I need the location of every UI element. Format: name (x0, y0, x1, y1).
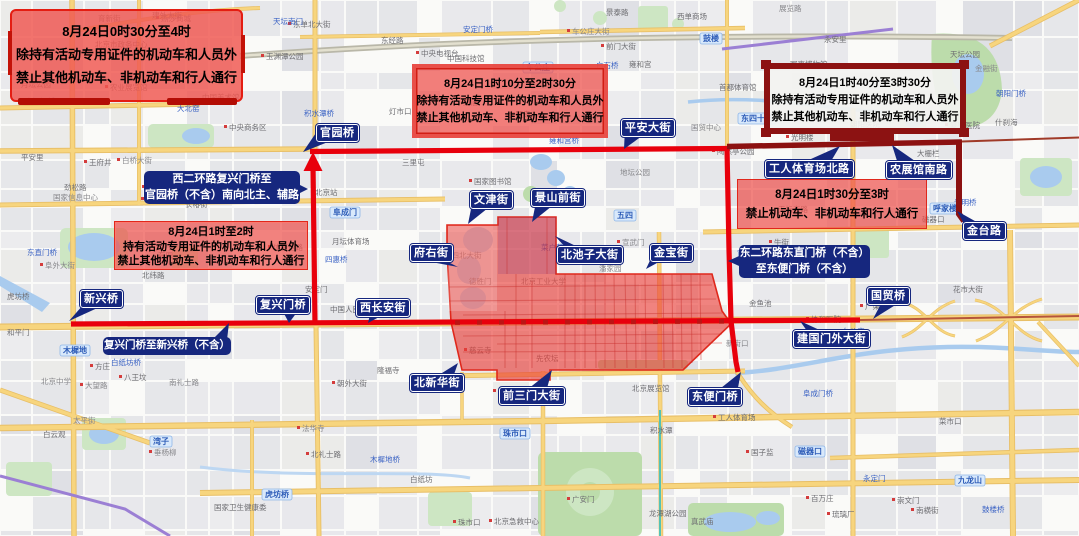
svg-text:广安门: 广安门 (572, 494, 595, 504)
svg-text:中国科技馆: 中国科技馆 (447, 53, 485, 63)
svg-text:八王坟: 八王坟 (124, 372, 147, 382)
svg-text:新街口: 新街口 (726, 338, 749, 348)
svg-text:垂杨柳: 垂杨柳 (154, 447, 177, 457)
svg-text:南礼士路: 南礼士路 (169, 377, 199, 387)
svg-text:白纸坊桥: 白纸坊桥 (111, 357, 141, 367)
svg-text:首都体育馆: 首都体育馆 (719, 82, 757, 92)
svg-text:木樨地桥: 木樨地桥 (370, 454, 400, 464)
svg-text:工人体育场: 工人体育场 (718, 412, 756, 422)
svg-text:北京中学: 北京中学 (41, 376, 71, 386)
svg-text:琉璃厂: 琉璃厂 (832, 509, 855, 519)
svg-text:什刹海: 什刹海 (995, 117, 1018, 127)
svg-text:湾子: 湾子 (153, 436, 169, 446)
svg-text:虎坊桥: 虎坊桥 (7, 291, 30, 301)
svg-text:阜成门桥: 阜成门桥 (803, 388, 833, 398)
svg-text:大望路: 大望路 (85, 380, 108, 390)
svg-text:五四: 五四 (617, 211, 633, 220)
svg-text:天坛公园: 天坛公园 (950, 49, 980, 59)
svg-text:金融街: 金融街 (975, 63, 998, 73)
svg-text:前门大街: 前门大街 (606, 41, 636, 51)
svg-text:白桥大街: 白桥大街 (122, 155, 152, 165)
svg-text:方庄: 方庄 (95, 361, 110, 371)
svg-text:永安里: 永安里 (824, 34, 847, 44)
svg-text:朝外大街: 朝外大街 (337, 378, 367, 388)
svg-text:阜外大街: 阜外大街 (45, 260, 75, 270)
svg-text:安定门桥: 安定门桥 (463, 24, 493, 34)
svg-text:北纬路: 北纬路 (142, 270, 165, 280)
svg-text:北京展览馆: 北京展览馆 (632, 383, 670, 393)
svg-text:玉渊潭公园: 玉渊潭公园 (266, 51, 304, 61)
svg-text:天坛南门: 天坛南门 (273, 16, 303, 26)
svg-text:和平门: 和平门 (7, 328, 30, 337)
svg-text:木樨地: 木樨地 (62, 345, 87, 355)
svg-text:鼓楼: 鼓楼 (703, 33, 719, 43)
svg-text:南横街: 南横街 (916, 505, 939, 515)
svg-text:积水潭桥: 积水潭桥 (304, 108, 334, 118)
svg-text:国子监: 国子监 (751, 447, 774, 457)
svg-text:真武庙: 真武庙 (691, 516, 714, 526)
svg-text:珠市口: 珠市口 (503, 428, 527, 438)
svg-text:呼家楼: 呼家楼 (933, 203, 957, 213)
svg-text:阜成门: 阜成门 (333, 207, 357, 217)
svg-text:鼓楼桥: 鼓楼桥 (982, 504, 1005, 514)
svg-text:积水潭: 积水潭 (650, 425, 673, 435)
svg-text:太平街: 太平街 (73, 415, 96, 425)
svg-text:东直门桥: 东直门桥 (27, 247, 57, 257)
svg-text:崇文门: 崇文门 (897, 495, 920, 505)
svg-text:三里屯: 三里屯 (402, 157, 425, 167)
svg-text:金鱼池: 金鱼池 (749, 298, 772, 308)
svg-text:东经路: 东经路 (381, 35, 404, 45)
svg-text:雍和宫: 雍和宫 (629, 59, 652, 69)
svg-text:北京急救中心: 北京急救中心 (494, 516, 539, 526)
svg-text:国家信息中心: 国家信息中心 (53, 192, 98, 202)
svg-text:虎坊桥: 虎坊桥 (265, 489, 290, 499)
svg-text:法华寺: 法华寺 (302, 423, 325, 433)
svg-text:菜市口: 菜市口 (939, 416, 962, 426)
svg-text:龙潭湖公园: 龙潭湖公园 (649, 508, 687, 518)
svg-text:地坛公园: 地坛公园 (620, 167, 650, 177)
svg-text:国家图书馆: 国家图书馆 (474, 176, 512, 186)
svg-text:珠市口: 珠市口 (458, 517, 481, 527)
svg-text:展览路: 展览路 (779, 3, 802, 13)
svg-text:景泰路: 景泰路 (606, 7, 629, 17)
svg-text:灯市口: 灯市口 (389, 106, 412, 116)
svg-text:朝阳门桥: 朝阳门桥 (996, 88, 1026, 98)
svg-text:宣武门: 宣武门 (622, 237, 645, 247)
svg-text:北京站: 北京站 (315, 187, 338, 197)
svg-text:王府井: 王府井 (89, 157, 112, 167)
svg-text:九龙山: 九龙山 (957, 475, 982, 485)
svg-text:永定门: 永定门 (863, 473, 886, 483)
svg-text:劲松路: 劲松路 (64, 182, 87, 192)
svg-text:国家卫生健康委: 国家卫生健康委 (214, 502, 267, 512)
svg-text:白云观: 白云观 (43, 429, 66, 439)
svg-text:国贸中心: 国贸中心 (691, 122, 721, 132)
svg-text:车公庄大街: 车公庄大街 (572, 26, 610, 36)
svg-text:白纸坊: 白纸坊 (410, 474, 433, 484)
svg-text:隆福寺: 隆福寺 (377, 365, 400, 375)
svg-text:大栅栏: 大栅栏 (917, 148, 940, 158)
svg-text:磁器口: 磁器口 (798, 446, 822, 456)
svg-text:北礼士路: 北礼士路 (311, 449, 341, 459)
svg-text:中央商务区: 中央商务区 (229, 122, 267, 132)
svg-text:四惠桥: 四惠桥 (325, 254, 348, 264)
svg-text:月坛体育场: 月坛体育场 (332, 236, 370, 246)
svg-text:西单商场: 西单商场 (677, 11, 707, 21)
svg-text:潘家园: 潘家园 (599, 263, 622, 273)
svg-text:平安里: 平安里 (21, 152, 44, 162)
svg-text:花市大街: 花市大街 (953, 284, 983, 294)
svg-text:百万庄: 百万庄 (811, 493, 834, 503)
